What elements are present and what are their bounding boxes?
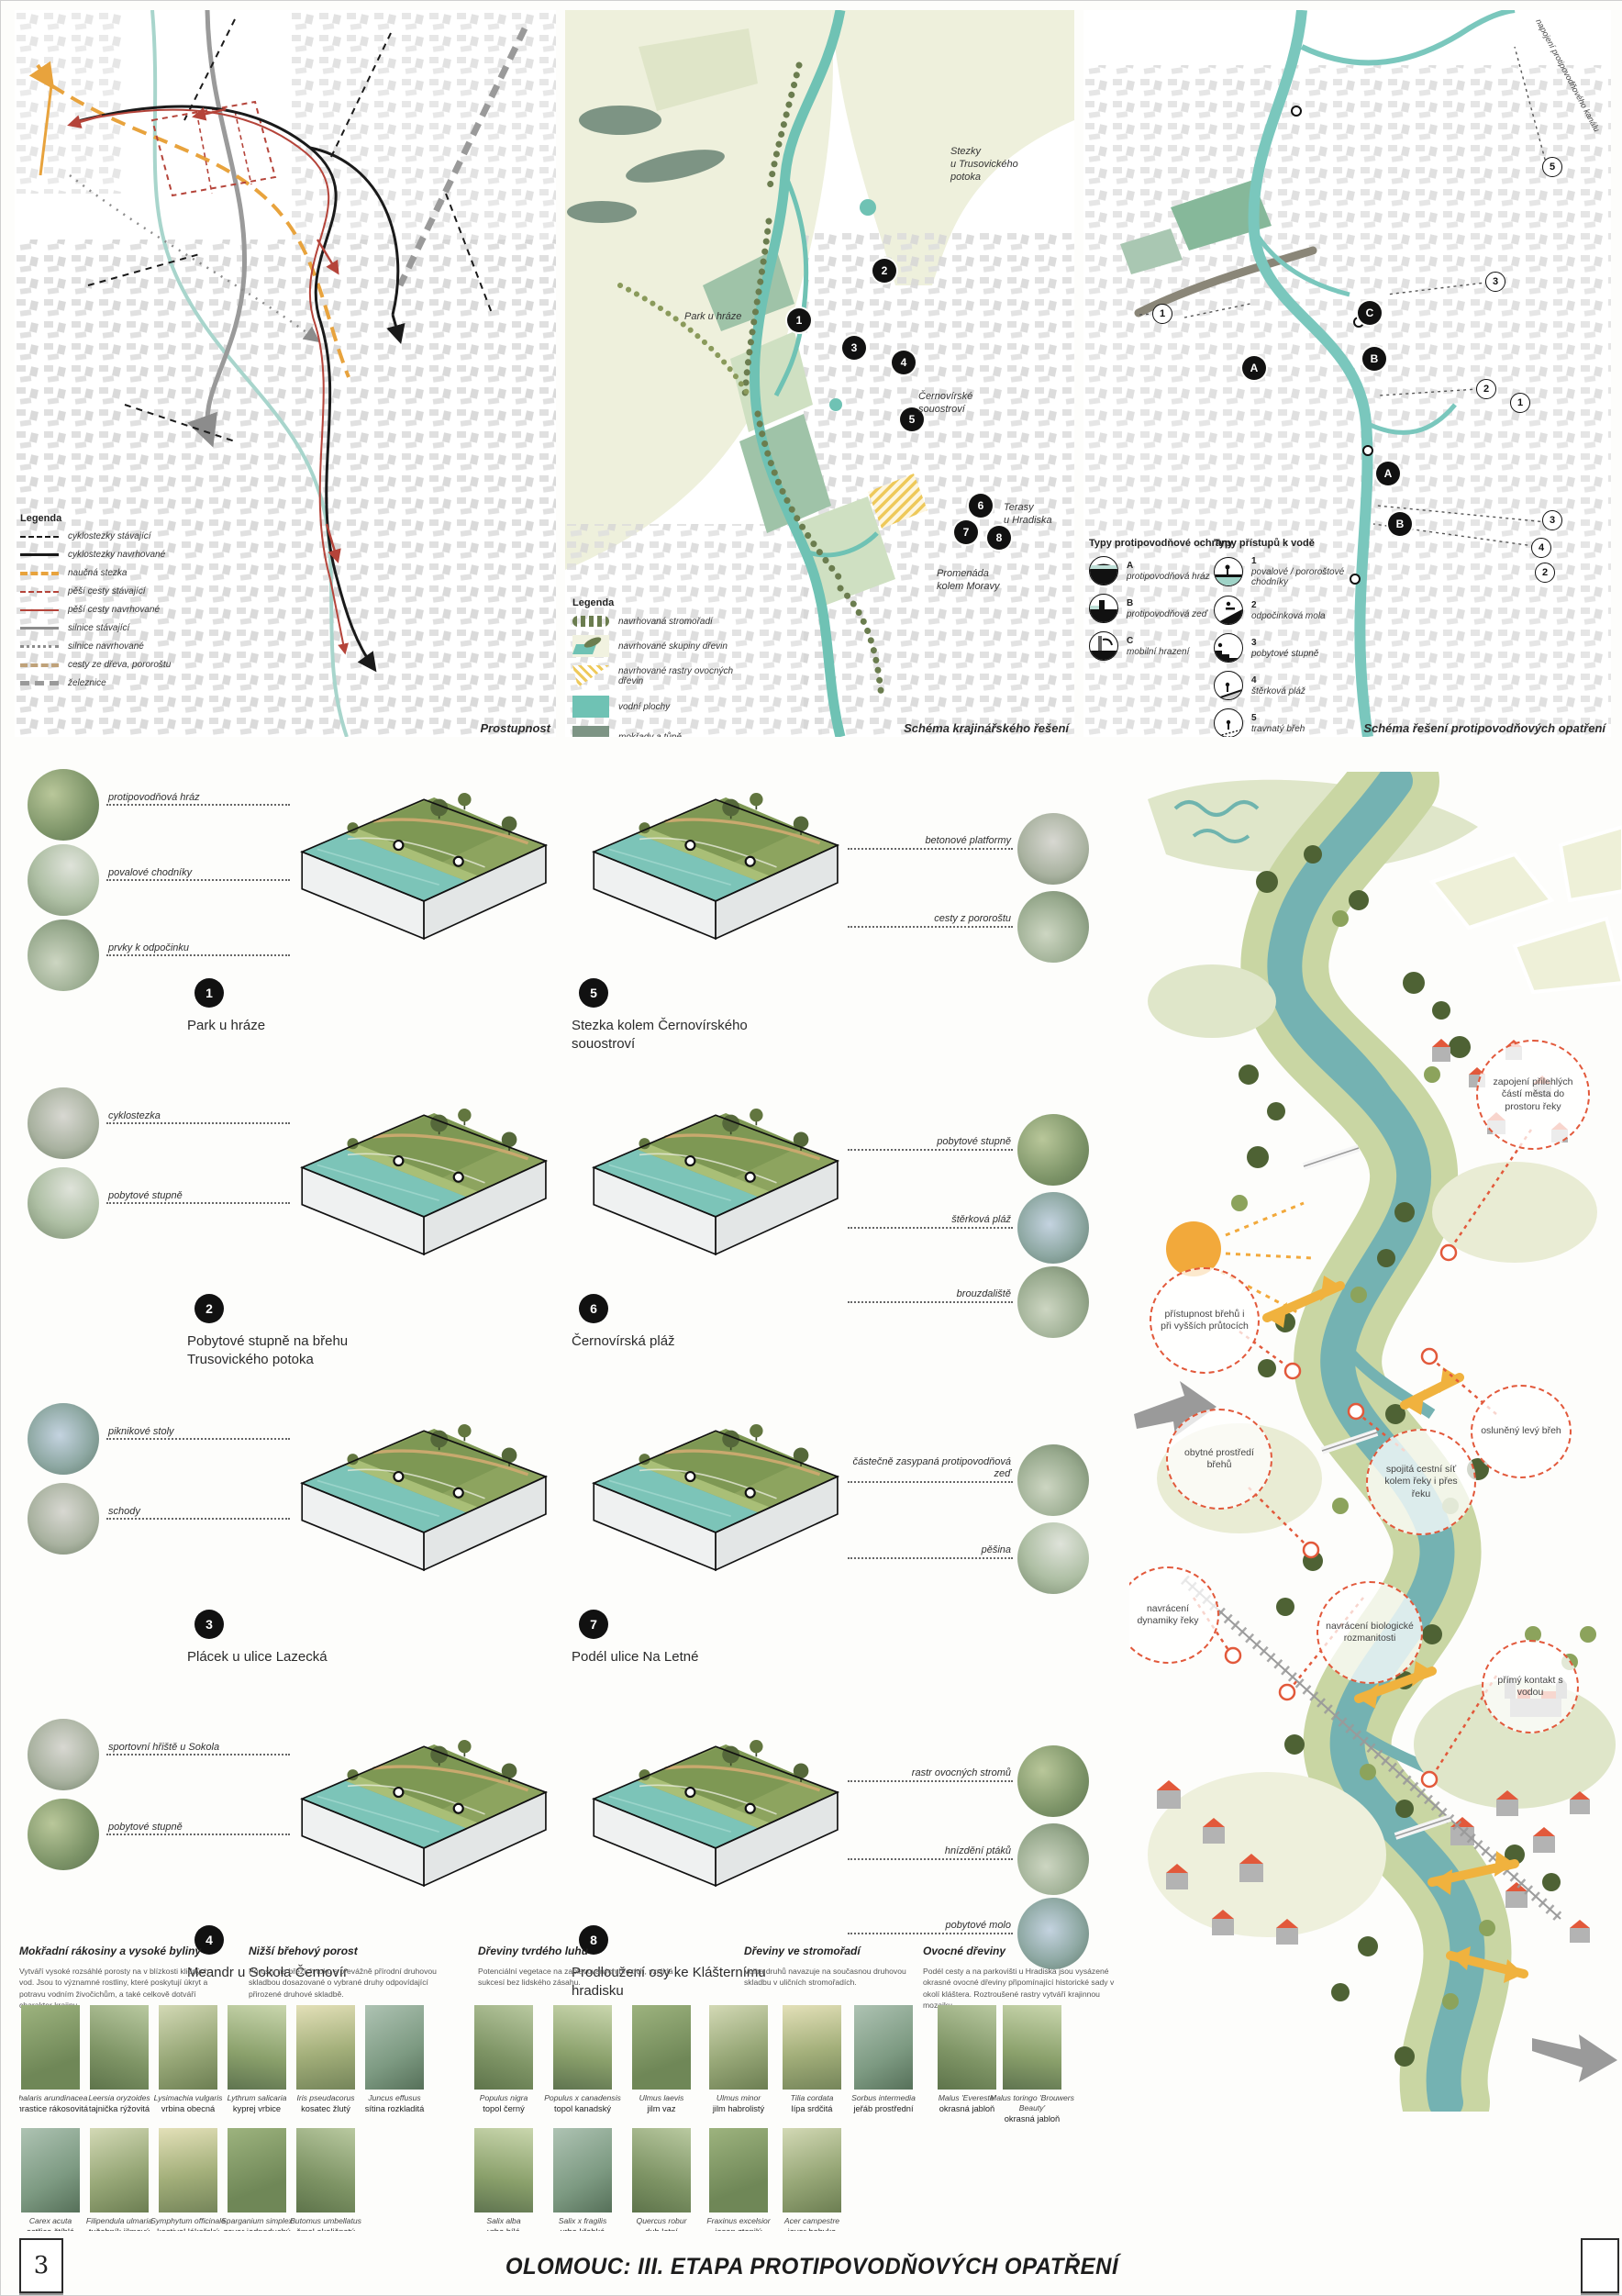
- callout-label: betonové platformy: [837, 835, 1011, 847]
- legend-key: 5: [1251, 713, 1305, 723]
- water-swatch-icon: [572, 696, 609, 718]
- species-item: Populus nigratopol černý: [461, 2005, 546, 2114]
- line-swatch-icon: [20, 609, 59, 611]
- legend-item: naučná stezka: [20, 568, 231, 578]
- legend-label: mobilní hrazení: [1127, 647, 1189, 657]
- map2-legend-title: Legenda: [572, 597, 774, 608]
- latin-name: Populus nigra: [461, 2093, 546, 2103]
- badge-number: 6: [590, 1301, 597, 1316]
- callout-label: štěrková pláž: [837, 1214, 1011, 1226]
- plant-photo: [21, 2128, 80, 2212]
- czech-name: javor babyka: [770, 2226, 854, 2231]
- legend-label: mokřady a tůně: [618, 732, 682, 738]
- line-swatch-icon: [20, 681, 59, 685]
- callout-label: rastr ovocných stromů: [837, 1767, 1011, 1779]
- plant-photo: [783, 2005, 841, 2090]
- callout-line: betonové platformy: [848, 833, 1013, 850]
- plant-photo: [228, 2128, 286, 2212]
- czech-name: vrba bílá: [461, 2226, 546, 2231]
- thumb-photo: [28, 920, 99, 991]
- plant-photo: [296, 2128, 355, 2212]
- diagram-caption: Park u hráze: [187, 1017, 444, 1035]
- callout-label: pěšina: [837, 1544, 1011, 1556]
- axon-illustration: [563, 767, 848, 942]
- species-item: Ulmus laevisjilm vaz: [619, 2005, 704, 2114]
- callout-label: protipovodňová hráz: [108, 792, 200, 803]
- axon-illustration: [563, 1083, 848, 1257]
- callout-label: pobytové stupně: [108, 1190, 183, 1201]
- thumb-photo: [28, 1403, 99, 1475]
- callout-label: sportovní hřiště u Sokola: [108, 1742, 219, 1753]
- legend-item: cyklostezky navrhované: [20, 550, 231, 560]
- plant-group: Dřeviny ve stromořadíVolba druhů navazuj…: [744, 1945, 909, 1989]
- species-item: Populus x canadensistopol kanadský: [540, 2005, 625, 2114]
- map3-num-2: 2: [1476, 379, 1496, 399]
- axon-illustration: [272, 1399, 556, 1573]
- legend-key: 4: [1251, 675, 1305, 685]
- map2-marker-8: 8: [987, 526, 1011, 550]
- czech-name: dub letní: [619, 2226, 704, 2231]
- callout-bubble: přímý kontakt s vodou: [1482, 1640, 1579, 1733]
- callout-label: hnízdění ptáků: [837, 1845, 1011, 1857]
- line-swatch-icon: [20, 572, 59, 575]
- callout-bubble: osluněný levý břeh: [1471, 1385, 1572, 1478]
- legend-label: cyklostezky stávající: [68, 531, 151, 541]
- legend-key: 1: [1251, 556, 1371, 566]
- plant-photo: [90, 2005, 149, 2090]
- callout-label: brouzdaliště: [837, 1288, 1011, 1300]
- plant-photo: [632, 2005, 691, 2090]
- thumb-photo: [28, 1719, 99, 1790]
- callout-line: piknikové stoly: [106, 1423, 290, 1440]
- diagram-badge: 2: [194, 1294, 224, 1323]
- callout-label: pobytové molo: [837, 1920, 1011, 1932]
- marker-number: 1: [796, 314, 803, 327]
- map2-label-souostrovi: Černovírské souostroví: [918, 391, 972, 417]
- plant-photo: [632, 2128, 691, 2212]
- map2-label-park: Park u hráze: [684, 311, 741, 324]
- marker-number: 7: [963, 526, 970, 539]
- callout-line: hnízdění ptáků: [848, 1844, 1013, 1860]
- badge-number: 5: [590, 986, 597, 1000]
- legend-label: odpočinková mola: [1251, 611, 1326, 621]
- latin-name: Sorbus intermedia: [841, 2093, 926, 2103]
- thumb-photo: [28, 844, 99, 916]
- plant-group: Dřeviny tvrdého luhuPotenciální vegetace…: [478, 1945, 675, 1989]
- legend-label: štěrková pláž: [1251, 686, 1305, 697]
- callout-label: povalové chodníky: [108, 867, 192, 878]
- callout-label: pobytové stupně: [837, 1136, 1011, 1148]
- poster: Legenda cyklostezky stávající cyklostezk…: [0, 0, 1622, 2296]
- map2-label-promenada: Promenáda kolem Moravy: [937, 568, 999, 594]
- callout-line: brouzdaliště: [848, 1287, 1013, 1303]
- plant-photo: [854, 2005, 913, 2090]
- species-item: Malus toringo 'Brouwers Beauty'okrasná j…: [990, 2005, 1074, 2124]
- czech-name: topol černý: [461, 2103, 546, 2114]
- marker-number: 5: [909, 413, 916, 426]
- legend-item: navrhované rastry ovocných dřevin: [572, 665, 774, 687]
- diagram-badge: 6: [579, 1294, 608, 1323]
- map1-caption: Prostupnost: [480, 721, 550, 735]
- marker-number: 1: [1517, 397, 1523, 408]
- legend-label: travnatý břeh: [1251, 724, 1305, 734]
- plant-group-title: Mokřadní rákosiny a vysoké byliny: [19, 1945, 217, 1957]
- legend-item: navrhovaná stromořadí: [572, 616, 774, 627]
- thumb-photo: [28, 1483, 99, 1555]
- tree-group-swatch-icon: [572, 635, 609, 657]
- poster-title: OLOMOUC: III. ETAPA PROTIPOVODŇOVÝCH OPA…: [33, 2254, 1590, 2280]
- latin-name: Salix x fragilis: [540, 2216, 625, 2226]
- legend-key: 3: [1251, 638, 1318, 648]
- species-item: Ulmus minorjilm habrolistý: [696, 2005, 781, 2114]
- plant-photo: [296, 2005, 355, 2090]
- map2-caption: Schéma krajinářského řešení: [904, 721, 1069, 735]
- marker-number: 3: [851, 341, 858, 354]
- plant-group: Mokřadní rákosiny a vysoké bylinyVytváří…: [19, 1945, 217, 2012]
- callout-line: pobytové stupně: [106, 1819, 290, 1835]
- plant-photo: [553, 2128, 612, 2212]
- thumb-photo: [1017, 1745, 1089, 1817]
- mobile-barrier-icon: [1089, 631, 1118, 661]
- czech-name: sítina rozkladitá: [352, 2103, 437, 2114]
- legend-label: silnice navrhované: [68, 641, 144, 652]
- corner-box: [1581, 2238, 1619, 2293]
- czech-name: jasan ztepilý: [696, 2226, 781, 2231]
- gravel-beach-icon: [1214, 671, 1243, 700]
- marker-number: 5: [1550, 162, 1555, 173]
- legend-item: 1povalové / pororoštové chodníky: [1214, 556, 1397, 587]
- callout-bubble: navrácení biologické rozmanitosti: [1316, 1581, 1423, 1684]
- line-swatch-icon: [20, 645, 59, 648]
- plant-group-title: Dřeviny tvrdého luhu: [478, 1945, 675, 1957]
- marker-number: 8: [996, 531, 1003, 544]
- legend-label: cyklostezky navrhované: [68, 550, 165, 560]
- plant-photo: [709, 2128, 768, 2212]
- steps-icon: [1214, 633, 1243, 663]
- callout-bubble: obytné prostředí břehů: [1166, 1409, 1272, 1510]
- marker-number: 2: [1542, 567, 1548, 578]
- legend-item: 3pobytové stupně: [1214, 633, 1397, 663]
- species-item: Fraxinus excelsiorjasan ztepilý: [696, 2128, 781, 2231]
- diagram-1: protipovodňová hráz povalové chodníky pr…: [15, 767, 558, 1083]
- callout-line: cesty z pororoštu: [848, 911, 1013, 928]
- map2-marker-7: 7: [954, 520, 978, 544]
- badge-number: 1: [206, 986, 213, 1000]
- callout-line: prvky k odpočinku: [106, 940, 290, 956]
- legend-item: silnice stávající: [20, 623, 231, 633]
- latin-name: Salix alba: [461, 2216, 546, 2226]
- legend-item: 4štěrková pláž: [1214, 671, 1397, 700]
- legend-item: pěší cesty stávající: [20, 586, 231, 596]
- map3-marker-B2: B: [1388, 512, 1412, 536]
- diagram-3: piknikové stoly schody 3 Plácek u ulice …: [15, 1399, 558, 1714]
- legend-label: povalové / pororoštové chodníky: [1251, 567, 1371, 587]
- callout-label: piknikové stoly: [108, 1426, 174, 1437]
- map2-marker-3: 3: [842, 336, 866, 360]
- legend-label: navrhované rastry ovocných dřevin: [618, 666, 747, 686]
- czech-name: jilm vaz: [619, 2103, 704, 2114]
- plant-photo: [709, 2005, 768, 2090]
- callout-line: povalové chodníky: [106, 864, 290, 881]
- river-illustration: zapojení přilehlých částí města do prost…: [1129, 772, 1622, 2112]
- grass-bank-icon: [1214, 708, 1243, 737]
- tree-row-swatch-icon: [572, 616, 609, 627]
- axon-illustration: [563, 1714, 848, 1889]
- latin-name: Butomus umbellatus: [283, 2216, 368, 2226]
- species-item: Salix x fragilisvrba křehká: [540, 2128, 625, 2231]
- legend-key: A: [1127, 561, 1210, 571]
- map2-label-stezky: Stezky u Trusovického potoka: [950, 146, 1018, 184]
- marker-letter: B: [1396, 518, 1405, 530]
- callout-line: rastr ovocných stromů: [848, 1766, 1013, 1782]
- marker-letter: A: [1384, 467, 1393, 480]
- map2-legend: Legenda navrhovaná stromořadí navrhované…: [572, 597, 774, 737]
- callout-line: cyklostezka: [106, 1108, 290, 1124]
- legend-label: protipovodňová zeď: [1127, 609, 1207, 619]
- map3-num-3b: 3: [1542, 510, 1562, 530]
- diagram-caption: Černovírská pláž: [572, 1332, 828, 1351]
- line-swatch-icon: [20, 663, 59, 667]
- plant-photo: [90, 2128, 149, 2212]
- legend-item: mokřady a tůně: [572, 726, 774, 737]
- diagram-caption: Pobytové stupně na břehu Trusovického po…: [187, 1332, 417, 1368]
- latin-name: Ulmus minor: [696, 2093, 781, 2103]
- czech-name: jeřáb prostřední: [841, 2103, 926, 2114]
- species-item: Acer campestrejavor babyka: [770, 2128, 854, 2231]
- legend-label: protipovodňová hráz: [1127, 572, 1210, 582]
- map-protipovodnova-opatreni: napojení protipovodňového kanálu A C B A…: [1083, 10, 1611, 737]
- map3-num-3: 3: [1485, 272, 1505, 292]
- legend-key: 2: [1251, 600, 1326, 610]
- map2-marker-2: 2: [872, 259, 896, 283]
- map3-legend-pristupy: Typy přístupů k vodě 1povalové / pororoš…: [1214, 538, 1397, 737]
- plant-photo: [365, 2005, 424, 2090]
- callout-label: cyklostezka: [108, 1110, 161, 1121]
- czech-name: jilm habrolistý: [696, 2103, 781, 2114]
- legend-label: navrhovaná stromořadí: [618, 617, 713, 627]
- badge-number: 2: [206, 1301, 213, 1316]
- line-swatch-icon: [20, 553, 59, 556]
- callout-line: částečně zasypaná protipovodňová zeď: [848, 1454, 1013, 1483]
- map3-num-1b: 1: [1510, 393, 1530, 413]
- plant-photo: [228, 2005, 286, 2090]
- callout-label: pobytové stupně: [108, 1822, 183, 1833]
- plant-photo: [553, 2005, 612, 2090]
- axon-illustration: [272, 767, 556, 942]
- marker-number: 4: [1539, 542, 1544, 553]
- thumb-photo: [1017, 891, 1089, 963]
- marker-letter: C: [1366, 307, 1374, 319]
- thumb-photo: [28, 769, 99, 841]
- species-item: Butomus umbellatusšmel okoličnatý: [283, 2128, 368, 2231]
- line-swatch-icon: [20, 591, 59, 593]
- axon-illustration: [272, 1083, 556, 1257]
- legend-item: 2odpočinková mola: [1214, 596, 1397, 625]
- thumb-photo: [1017, 1823, 1089, 1895]
- plants-section: Mokřadní rákosiny a vysoké bylinyVytváří…: [19, 1945, 1134, 2231]
- legend-label: pobytové stupně: [1251, 649, 1318, 659]
- latin-name: Populus x canadensis: [540, 2093, 625, 2103]
- plant-group: Nižší břehový porostPorosty na březích t…: [249, 1945, 446, 2000]
- plant-group-text: Volba druhů navazuje na současnou druhov…: [744, 1966, 909, 1989]
- marker-number: 3: [1550, 515, 1555, 526]
- pier-icon: [1214, 596, 1243, 625]
- callout-label: schody: [108, 1506, 140, 1517]
- map3-num-5: 5: [1542, 157, 1562, 177]
- latin-name: Quercus robur: [619, 2216, 704, 2226]
- legend-label: pěší cesty navrhované: [68, 605, 160, 615]
- thumb-photo: [1017, 1444, 1089, 1516]
- legend-label: navrhované skupiny dřevin: [618, 641, 728, 652]
- plant-photo: [474, 2128, 533, 2212]
- legend-item: silnice navrhované: [20, 641, 231, 652]
- callout-line: pěšina: [848, 1543, 1013, 1559]
- diagram-2: cyklostezka pobytové stupně 2 Pobytové s…: [15, 1083, 558, 1399]
- legend-item: pěší cesty navrhované: [20, 605, 231, 615]
- map1-legend-title: Legenda: [20, 513, 231, 524]
- plant-group-title: Nižší břehový porost: [249, 1945, 446, 1957]
- plant-group-text: Porosty na březích toku s převážně příro…: [249, 1966, 446, 2000]
- plant-photo: [159, 2128, 217, 2212]
- marker-number: 3: [1493, 276, 1498, 287]
- legend-item: cesty ze dřeva, pororoštu: [20, 660, 231, 670]
- plant-photo: [474, 2005, 533, 2090]
- badge-number: 3: [206, 1617, 213, 1632]
- legend-label: pěší cesty stávající: [68, 586, 145, 596]
- callout-label: cesty z pororoštu: [837, 913, 1011, 925]
- diagram-6: pobytové stupně štěrková pláž brouzdališ…: [559, 1083, 1102, 1399]
- plant-photo: [783, 2128, 841, 2212]
- callout-label: prvky k odpočinku: [108, 942, 189, 953]
- plant-photo: [159, 2005, 217, 2090]
- callout-line: pobytové molo: [848, 1918, 1013, 1934]
- legend-item: cyklostezky stávající: [20, 531, 231, 541]
- species-item: Sorbus intermediajeřáb prostřední: [841, 2005, 926, 2114]
- legend-label: cesty ze dřeva, pororoštu: [68, 660, 171, 670]
- map3-marker-A2: A: [1376, 462, 1400, 485]
- thumb-photo: [1017, 813, 1089, 885]
- map2-marker-4: 4: [892, 351, 916, 374]
- axon-illustration: [563, 1399, 848, 1573]
- species-item: Quercus roburdub letní: [619, 2128, 704, 2231]
- wetland-swatch-icon: [572, 726, 609, 737]
- map3-num-4: 4: [1531, 538, 1551, 558]
- species-item: Salix albavrba bílá: [461, 2128, 546, 2231]
- marker-number: 1: [1160, 308, 1165, 319]
- marker-number: 4: [901, 356, 907, 369]
- plant-group-title: Dřeviny ve stromořadí: [744, 1945, 909, 1957]
- latin-name: Malus toringo 'Brouwers Beauty': [990, 2093, 1074, 2113]
- callout-line: pobytové stupně: [848, 1134, 1013, 1151]
- marker-number: 2: [882, 264, 888, 277]
- line-swatch-icon: [20, 536, 59, 538]
- czech-name: okrasná jabloň: [990, 2113, 1074, 2124]
- map3-marker-A: A: [1242, 356, 1266, 380]
- map2-marker-6: 6: [969, 494, 993, 518]
- diagram-caption: Podél ulice Na Letné: [572, 1648, 828, 1666]
- map2-marker-1: 1: [787, 308, 811, 332]
- plant-photo: [1003, 2005, 1061, 2090]
- diagram-badge: 3: [194, 1610, 224, 1639]
- diagram-badge: 7: [579, 1610, 608, 1639]
- marker-number: 2: [1483, 384, 1489, 395]
- diagram-badge: 1: [194, 978, 224, 1008]
- legend-label: vodní plochy: [618, 702, 670, 712]
- legend-key: B: [1127, 598, 1207, 608]
- diagram-5: betonové platformy cesty z pororoštu 5 S…: [559, 767, 1102, 1083]
- czech-name: šmel okoličnatý: [283, 2226, 368, 2231]
- latin-name: Acer campestre: [770, 2216, 854, 2226]
- dike-icon: [1089, 556, 1118, 585]
- callout-bubble: zapojení přilehlých částí města do prost…: [1476, 1040, 1590, 1150]
- plant-photo: [938, 2005, 996, 2090]
- latin-name: Fraxinus excelsior: [696, 2216, 781, 2226]
- thumb-photo: [1017, 1522, 1089, 1594]
- map3-num-2b: 2: [1535, 563, 1555, 583]
- map1-legend: Legenda cyklostezky stávající cyklostezk…: [20, 513, 231, 697]
- diagram-caption: Stezka kolem Černovírského souostroví: [572, 1017, 773, 1053]
- floodwall-icon: [1089, 594, 1118, 623]
- callout-bubble: přístupnost břehů i při vyšších průtocíc…: [1150, 1267, 1260, 1374]
- callout-label: částečně zasypaná protipovodňová zeď: [837, 1456, 1011, 1480]
- plant-group-title: Ovocné dřeviny: [923, 1945, 1129, 1957]
- callout-bubble: spojitá cestní síť kolem řeky i přes řek…: [1366, 1429, 1476, 1535]
- map2-label-terasy: Terasy u Hradiska: [1004, 502, 1052, 528]
- plant-group: Ovocné dřevinyPodél cesty a na parkovišt…: [923, 1945, 1129, 2012]
- legend-item: vodní plochy: [572, 696, 774, 718]
- legend-item: železnice: [20, 678, 231, 688]
- callout-line: protipovodňová hráz: [106, 789, 290, 806]
- latin-name: Ulmus laevis: [619, 2093, 704, 2103]
- legend-label: silnice stávající: [68, 623, 129, 633]
- czech-name: vrba křehká: [540, 2226, 625, 2231]
- marker-letter: B: [1371, 352, 1379, 365]
- axon-illustration: [272, 1714, 556, 1889]
- orchard-grid-swatch-icon: [572, 665, 609, 687]
- map-krajinarske-reseni: 1 2 3 4 5 6 7 8 Stezky u Trusovického po…: [565, 10, 1074, 737]
- legend-item: navrhované skupiny dřevin: [572, 635, 774, 657]
- species-item: Juncus effusussítina rozkladitá: [352, 2005, 437, 2114]
- boardwalk-icon: [1214, 557, 1243, 586]
- map3-marker-B: B: [1362, 347, 1386, 371]
- latin-name: Juncus effusus: [352, 2093, 437, 2103]
- legend-label: železnice: [68, 678, 106, 688]
- map3-num-1: 1: [1152, 304, 1172, 324]
- diagram-badge: 5: [579, 978, 608, 1008]
- czech-name: topol kanadský: [540, 2103, 625, 2114]
- callout-line: schody: [106, 1503, 290, 1520]
- callout-line: pobytové stupně: [106, 1187, 290, 1204]
- thumb-photo: [1017, 1192, 1089, 1264]
- plant-group-text: Potenciální vegetace na zaplavovaných bř…: [478, 1966, 675, 1989]
- map3-legend-b-title: Typy přístupů k vodě: [1214, 538, 1397, 549]
- map3-caption: Schéma řešení protipovodňových opatření: [1363, 721, 1605, 735]
- line-swatch-icon: [20, 627, 59, 630]
- legend-label: naučná stezka: [68, 568, 128, 578]
- thumb-photo: [28, 1167, 99, 1239]
- diagram-grid: protipovodňová hráz povalové chodníky pr…: [15, 767, 1106, 2034]
- marker-letter: A: [1250, 362, 1259, 374]
- marker-number: 6: [978, 499, 984, 512]
- legend-key: C: [1127, 636, 1189, 646]
- diagram-caption: Plácek u ulice Lazecká: [187, 1648, 444, 1666]
- thumb-photo: [28, 1087, 99, 1159]
- map-prostupnost: Legenda cyklostezky stávající cyklostezk…: [15, 10, 556, 737]
- thumb-photo: [1017, 1114, 1089, 1186]
- thumb-photo: [1017, 1266, 1089, 1338]
- diagram-7: částečně zasypaná protipovodňová zeď pěš…: [559, 1399, 1102, 1714]
- thumb-photo: [28, 1799, 99, 1870]
